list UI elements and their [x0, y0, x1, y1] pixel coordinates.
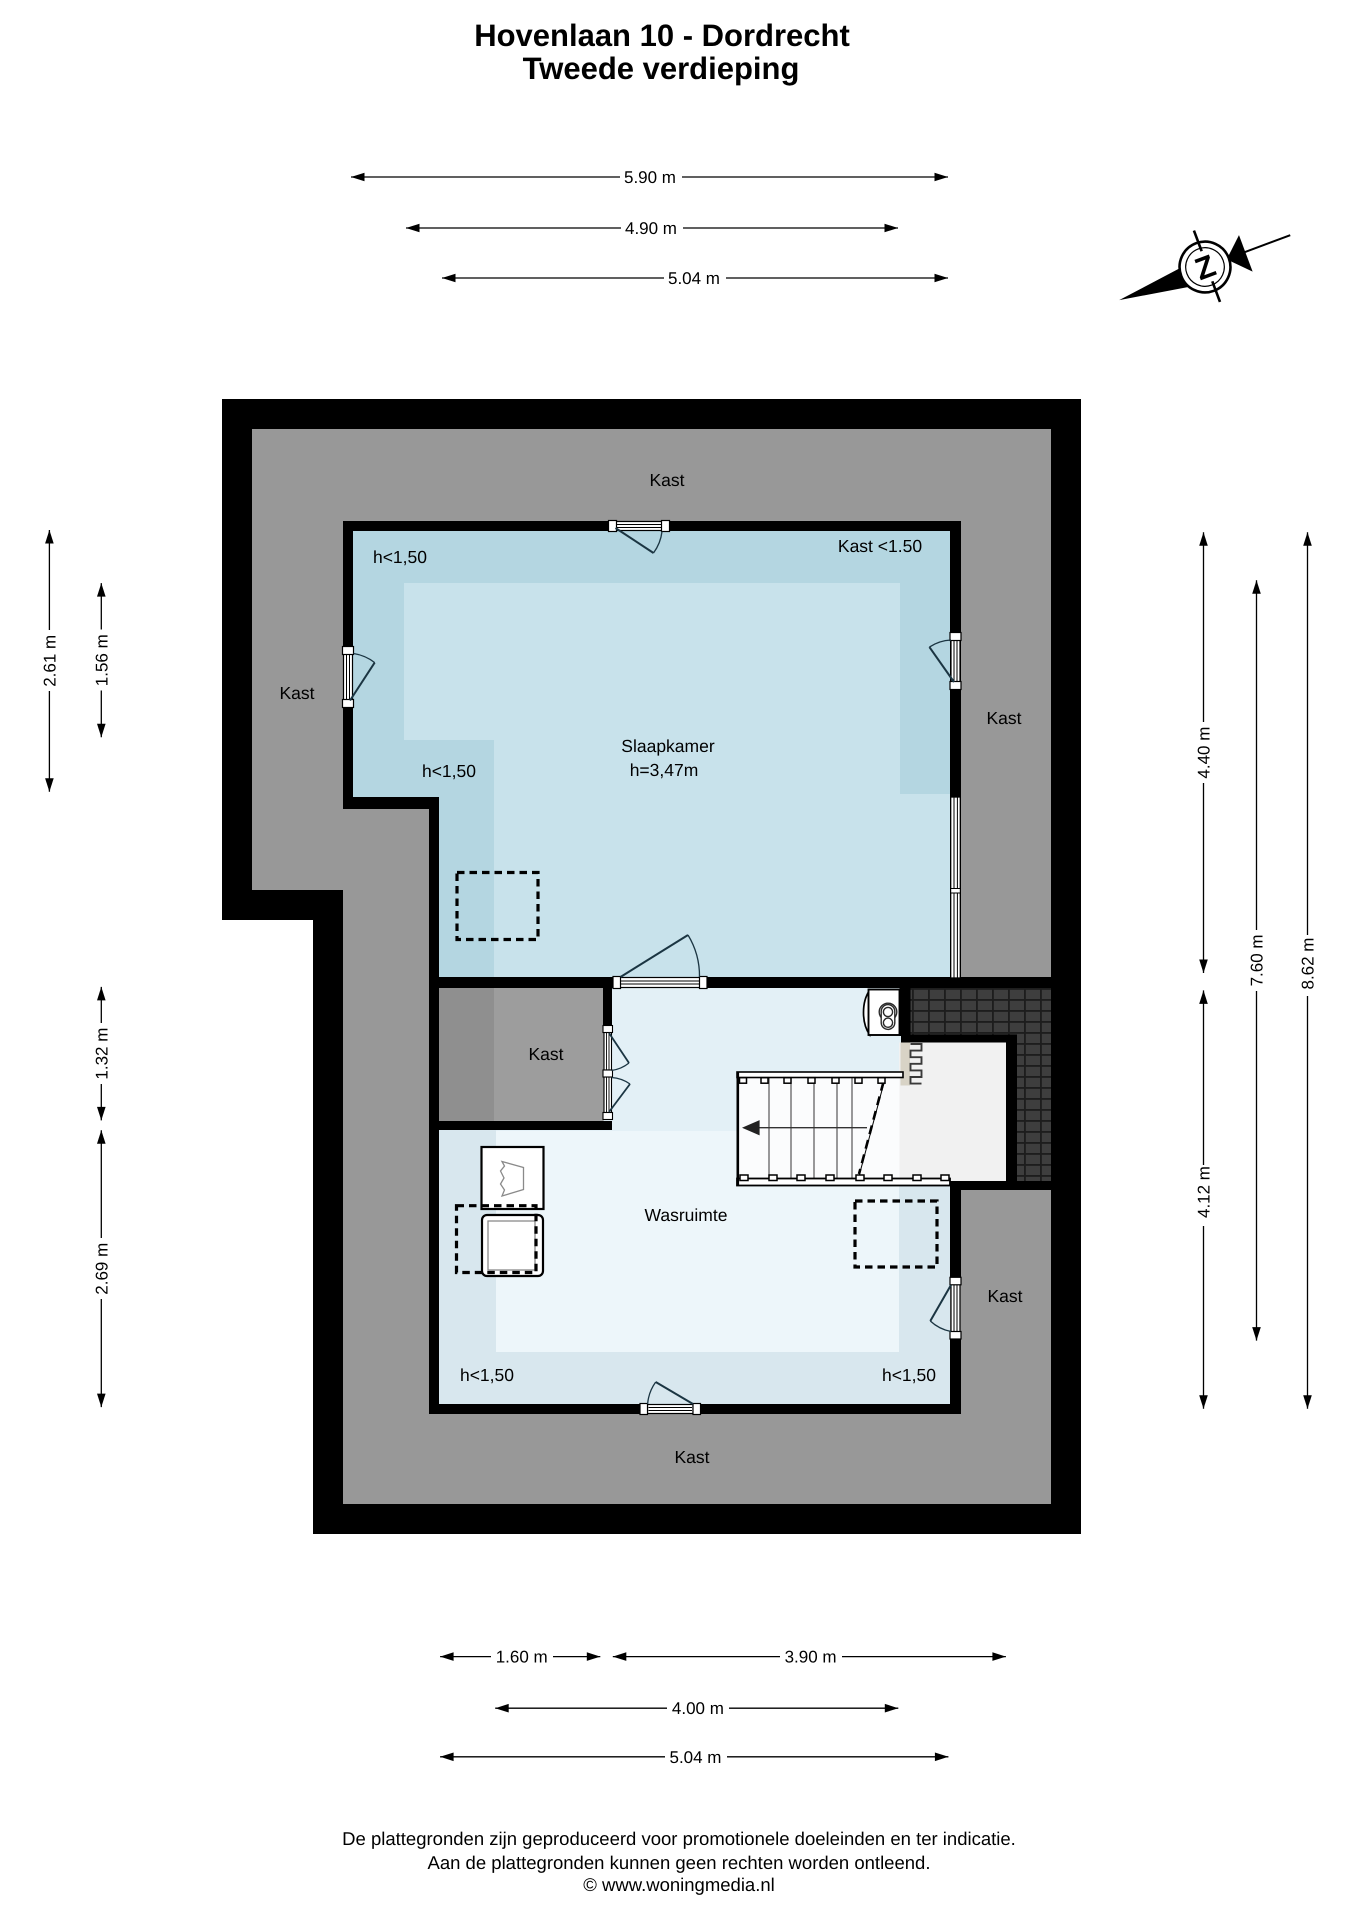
svg-text:Kast <1.50: Kast <1.50: [838, 536, 922, 556]
svg-text:5.04 m: 5.04 m: [670, 1748, 722, 1767]
svg-text:5.04 m: 5.04 m: [668, 269, 720, 288]
svg-text:Kast: Kast: [674, 1447, 709, 1467]
svg-text:4.00 m: 4.00 m: [672, 1699, 724, 1718]
svg-text:Kast: Kast: [987, 1286, 1022, 1306]
svg-text:h<1,50: h<1,50: [460, 1365, 514, 1385]
svg-text:Wasruimte: Wasruimte: [645, 1205, 728, 1225]
svg-text:4.90 m: 4.90 m: [625, 219, 677, 238]
svg-text:1.60 m: 1.60 m: [496, 1648, 548, 1667]
svg-text:Hovenlaan 10 - Dordrecht: Hovenlaan 10 - Dordrecht: [474, 18, 850, 53]
svg-text:Tweede verdieping: Tweede verdieping: [523, 51, 800, 86]
svg-text:8.62 m: 8.62 m: [1299, 938, 1318, 990]
svg-text:h<1,50: h<1,50: [422, 761, 476, 781]
svg-text:2.69 m: 2.69 m: [92, 1243, 111, 1295]
svg-text:Kast: Kast: [986, 708, 1021, 728]
svg-text:7.60 m: 7.60 m: [1248, 934, 1267, 986]
svg-text:5.90 m: 5.90 m: [624, 168, 676, 187]
svg-text:Kast: Kast: [528, 1044, 563, 1064]
svg-text:h=3,47m: h=3,47m: [630, 760, 699, 780]
svg-text:2.61 m: 2.61 m: [40, 635, 59, 687]
svg-text:4.40 m: 4.40 m: [1195, 727, 1214, 779]
svg-text:h<1,50: h<1,50: [882, 1365, 936, 1385]
svg-text:De plattegronden zijn geproduc: De plattegronden zijn geproduceerd voor …: [342, 1828, 1016, 1849]
svg-text:Kast: Kast: [649, 470, 684, 490]
svg-text:h<1,50: h<1,50: [373, 547, 427, 567]
svg-text:Aan de plattegronden kunnen ge: Aan de plattegronden kunnen geen rechten…: [428, 1852, 931, 1873]
svg-text:1.56 m: 1.56 m: [92, 634, 111, 686]
svg-text:Slaapkamer: Slaapkamer: [621, 736, 715, 756]
svg-text:4.12 m: 4.12 m: [1195, 1166, 1214, 1218]
svg-text:3.90 m: 3.90 m: [785, 1648, 837, 1667]
svg-text:© www.woningmedia.nl: © www.woningmedia.nl: [583, 1874, 775, 1895]
svg-text:1.32 m: 1.32 m: [92, 1028, 111, 1080]
svg-text:Kast: Kast: [279, 683, 314, 703]
